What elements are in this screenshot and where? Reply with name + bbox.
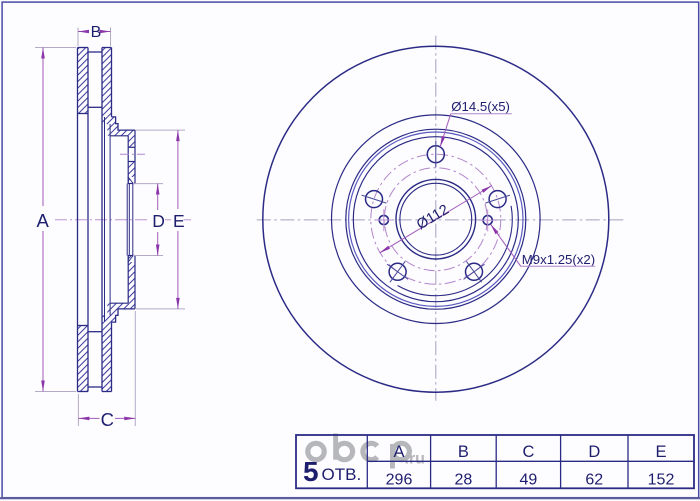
svg-text:C: C — [522, 443, 534, 461]
svg-text:D: D — [588, 443, 600, 461]
svg-text:E: E — [655, 443, 666, 461]
svg-text:B: B — [458, 443, 469, 461]
svg-text:E: E — [173, 211, 185, 231]
svg-text:152: 152 — [648, 472, 675, 489]
svg-text:296: 296 — [386, 472, 413, 489]
svg-text:.ru: .ru — [405, 451, 425, 468]
svg-text:49: 49 — [520, 472, 538, 489]
svg-text:62: 62 — [585, 472, 603, 489]
svg-text:Ø14.5(x5): Ø14.5(x5) — [451, 99, 510, 114]
svg-text:A: A — [37, 210, 50, 231]
svg-text:M9x1.25(x2): M9x1.25(x2) — [522, 252, 595, 267]
svg-text:C: C — [101, 409, 114, 430]
svg-text:ОТВ.: ОТВ. — [322, 465, 362, 484]
svg-text:D: D — [152, 211, 165, 231]
svg-text:28: 28 — [455, 472, 473, 489]
svg-text:5: 5 — [303, 456, 319, 487]
svg-text:Ø112: Ø112 — [414, 202, 452, 233]
svg-text:B: B — [91, 24, 102, 41]
svg-text:A: A — [393, 443, 404, 461]
